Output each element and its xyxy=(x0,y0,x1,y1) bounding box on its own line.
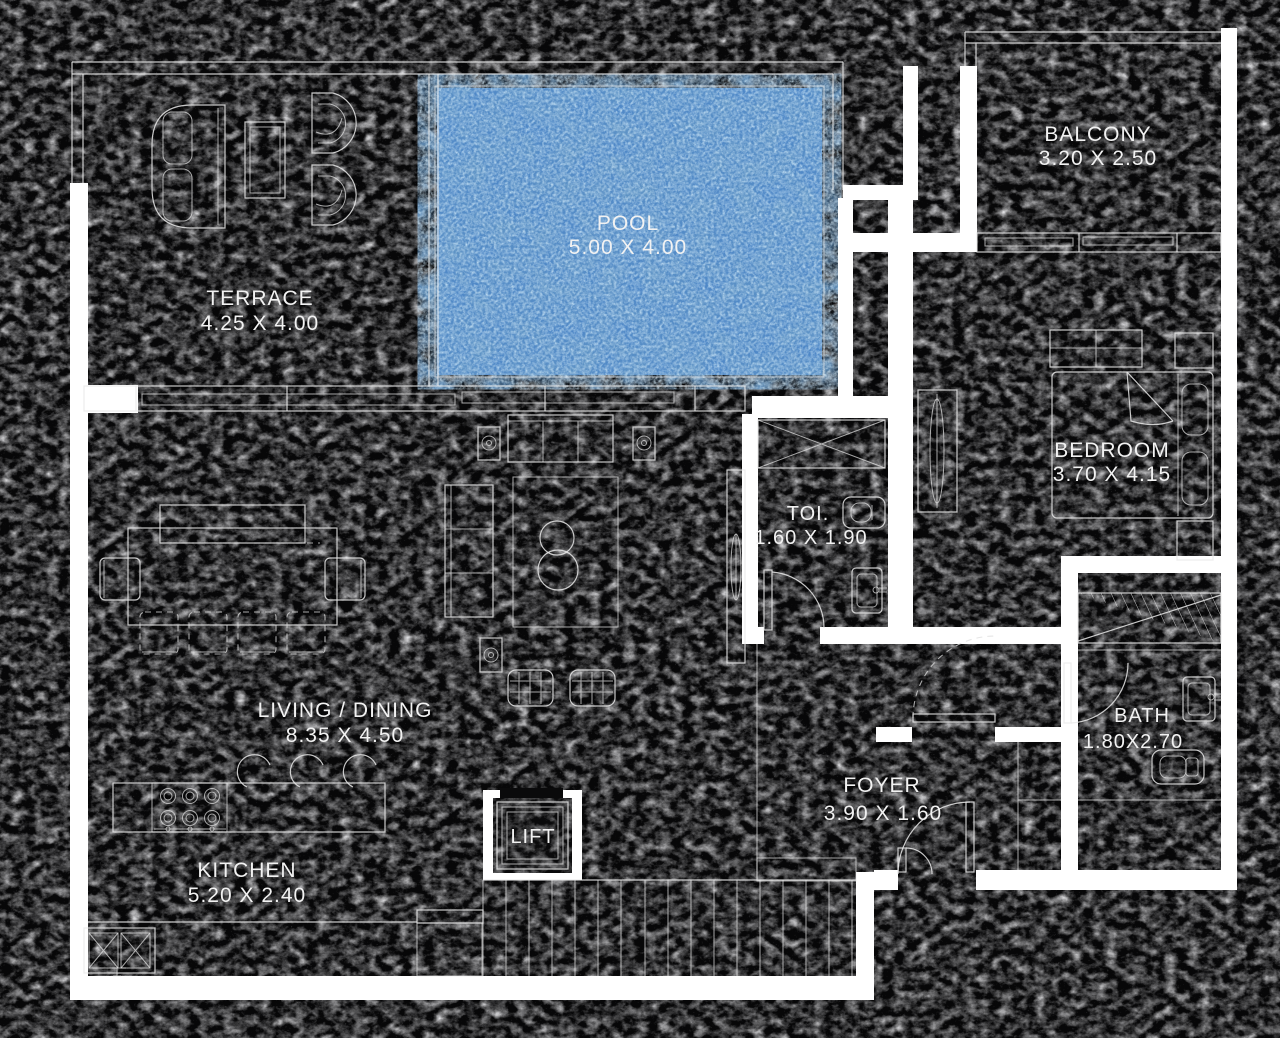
room-dims: 1.80X2.70 xyxy=(1083,731,1183,753)
floor-plan-page: POOL 5.00 X 4.00 xyxy=(0,0,1280,1038)
wall xyxy=(820,627,1061,644)
wall xyxy=(976,870,1061,890)
room-dims: 5.00 X 4.00 xyxy=(569,236,687,259)
room-label: BALCONY xyxy=(1044,123,1151,146)
room-dims: 4.25 X 4.00 xyxy=(201,312,319,335)
room-dims: 3.90 X 1.60 xyxy=(824,802,942,825)
room-dims: 3.20 X 2.50 xyxy=(1039,147,1157,170)
room-label: KITCHEN xyxy=(197,859,296,882)
lift-shaft: LIFT xyxy=(483,788,582,880)
pool-area: POOL 5.00 X 4.00 xyxy=(435,86,824,377)
wall xyxy=(995,727,1061,742)
room-dims: 8.35 X 4.50 xyxy=(286,724,404,747)
lift-door-opening xyxy=(500,788,563,798)
room-label: LIVING / DINING xyxy=(258,699,433,722)
room-label: BEDROOM xyxy=(1054,439,1170,462)
room-label: FOYER xyxy=(843,774,920,797)
room-dims: 1.60 X 1.90 xyxy=(754,527,867,549)
wall xyxy=(1061,556,1221,573)
room-label: TOI. xyxy=(787,503,830,525)
wall xyxy=(876,727,912,742)
room-label: POOL xyxy=(597,212,659,235)
balcony-room: BALCONY 3.20 X 2.50 xyxy=(1039,123,1157,170)
wall xyxy=(960,66,977,233)
room-label: BATH xyxy=(1114,705,1170,727)
wall xyxy=(70,183,88,976)
wall xyxy=(1221,28,1237,890)
wall xyxy=(1052,870,1236,890)
wall xyxy=(888,198,913,644)
room-dims: 5.20 X 2.40 xyxy=(188,884,306,907)
floor-plan-svg: POOL 5.00 X 4.00 xyxy=(0,0,1280,1038)
wall xyxy=(70,385,138,413)
wall xyxy=(70,976,874,1000)
wall xyxy=(856,872,874,980)
wall xyxy=(874,870,898,890)
room-dims: 3.70 X 4.15 xyxy=(1053,463,1171,486)
room-label: TERRACE xyxy=(206,287,313,310)
wall xyxy=(838,198,853,398)
wall xyxy=(903,66,918,188)
room-label: LIFT xyxy=(510,826,555,848)
wall xyxy=(843,185,918,200)
